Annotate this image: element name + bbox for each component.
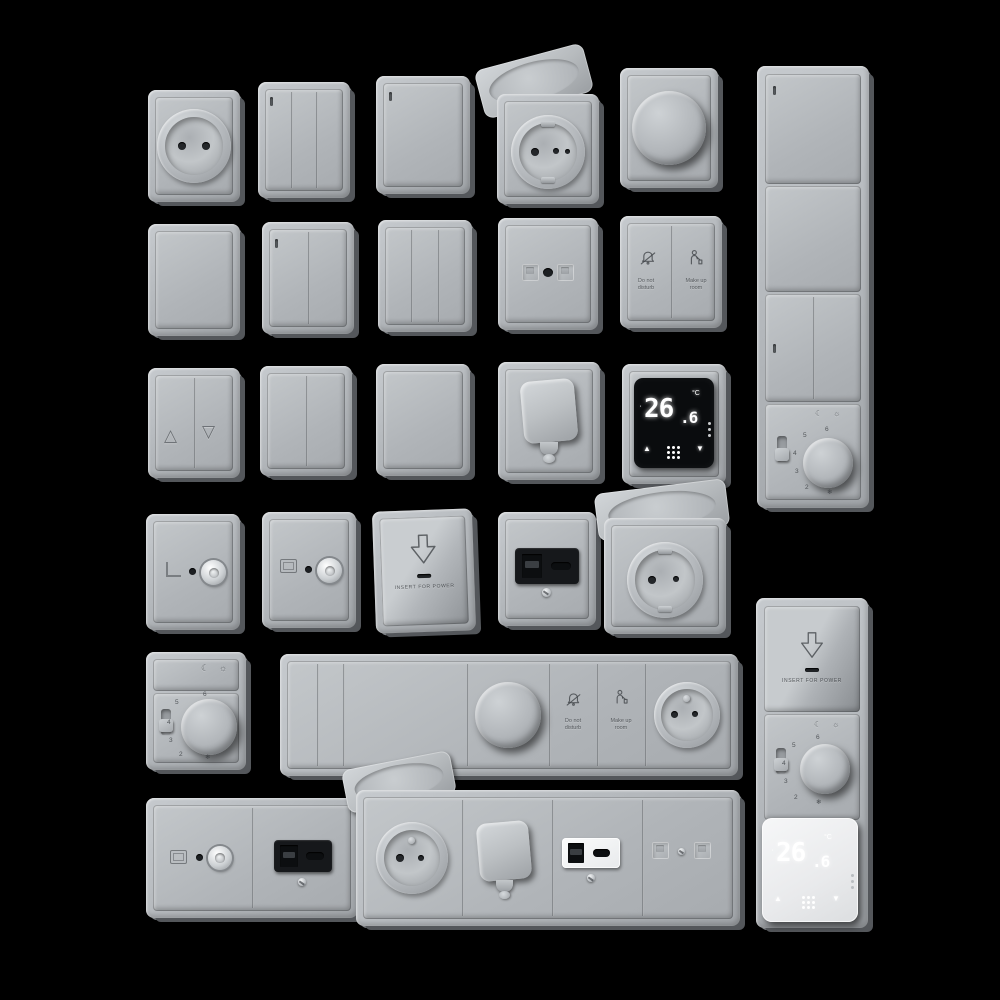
dnd-line2: disturb — [548, 725, 598, 732]
tv-socket-plate — [262, 512, 356, 628]
mur-label: Make up room — [596, 718, 646, 731]
arrow-down-icon — [406, 531, 441, 566]
dial-freeze: ❄ — [205, 753, 210, 761]
temp-int: 26 — [776, 838, 805, 868]
usb-c-port — [306, 852, 324, 860]
blank-face — [155, 231, 233, 329]
switch-rocker — [383, 83, 463, 187]
do-not-disturb-bell-icon — [638, 248, 658, 268]
indicator-led — [773, 344, 776, 353]
ir-hole — [189, 568, 196, 575]
cable-outlet-plate — [498, 362, 600, 480]
usb-white-insert — [562, 838, 620, 868]
switch-1gang-plate — [376, 76, 470, 194]
screw — [678, 848, 685, 855]
dial-freeze: ❄ — [816, 798, 821, 806]
dial-2: 2 — [805, 484, 809, 491]
dial-3: 3 — [169, 737, 173, 744]
coax-connector — [201, 560, 226, 585]
up-button: ▲ — [643, 444, 651, 453]
thermostat-slider — [775, 448, 789, 461]
horizontal-4unit-frame — [356, 790, 740, 926]
dimmer-knob — [475, 682, 541, 748]
card-led-slot — [805, 668, 819, 672]
insert-label: INSERT FOR POWER — [767, 678, 857, 684]
switch-rocker — [383, 371, 463, 469]
earth-clip-top — [658, 548, 672, 554]
down-button: ▼ — [832, 894, 840, 903]
divider — [645, 664, 647, 766]
indicator-led — [275, 239, 278, 248]
hotel-service-switch: Do not disturb Make up room — [620, 216, 722, 328]
key-card-holder: INSERT FOR POWER — [764, 606, 860, 712]
usb-a-port — [522, 554, 542, 578]
divider — [317, 664, 319, 766]
do-not-disturb-bell-icon — [564, 690, 583, 709]
divider — [343, 664, 345, 766]
divider — [597, 664, 599, 766]
shutter-switch-plate: △ ▽ — [148, 368, 240, 478]
divider — [549, 664, 551, 766]
sun-icon: ☼ — [219, 663, 227, 673]
dial-3: 3 — [784, 778, 788, 785]
socket-ring — [627, 542, 703, 618]
earth-clip-bottom — [541, 177, 555, 183]
rocker-divider — [438, 230, 440, 322]
socket-recess — [165, 117, 223, 175]
dial-4: 4 — [793, 450, 797, 457]
make-up-room-person-icon — [686, 248, 706, 268]
french-socket-ring — [654, 682, 720, 748]
usb-insert — [274, 840, 332, 872]
usb-c-port — [593, 849, 610, 857]
socket-hole-left — [396, 854, 404, 862]
sun-icon: ☼ — [832, 720, 839, 729]
tv-usb-double-frame — [146, 798, 358, 918]
indicator-led — [773, 86, 776, 95]
switch-rockers — [265, 89, 343, 191]
blank-plate — [148, 224, 240, 336]
data-port-right-icon — [694, 842, 711, 859]
data-port-right-icon — [557, 264, 574, 281]
rocker-divider — [671, 226, 673, 318]
make-up-room-person-icon — [612, 688, 631, 707]
temp-int: 26 — [644, 394, 673, 424]
switch-rockers — [267, 373, 345, 469]
sun-icon: ☼ — [833, 409, 840, 418]
side-dots — [708, 422, 711, 425]
service-rockers — [627, 223, 715, 321]
usb-a-port — [568, 843, 584, 863]
cable-spout — [519, 378, 578, 444]
dimmer-knob — [632, 91, 706, 165]
socket-hole-left — [531, 148, 539, 156]
dial-4: 4 — [167, 719, 171, 726]
spout-tip — [499, 891, 510, 899]
mur-line2: room — [674, 285, 718, 292]
coax-connector — [317, 558, 342, 583]
indicator-led — [270, 97, 273, 106]
thermostat-knob — [181, 699, 237, 755]
dnd-label: Do not disturb — [624, 278, 668, 291]
earth-clip-bottom — [658, 606, 672, 612]
temp-dec: .6 — [812, 852, 829, 871]
divider — [252, 808, 254, 908]
coax-connector — [208, 846, 232, 870]
dial-4: 4 — [782, 760, 786, 767]
tv-monitor-icon — [170, 850, 187, 864]
unit-label: °C — [824, 834, 832, 841]
thermostat-body: 6 5 4 3 2 ❄ — [153, 693, 239, 763]
dial-6: 6 — [203, 691, 207, 698]
socket-hole-right — [673, 576, 679, 582]
switch-3gang-plate — [378, 220, 472, 332]
menu-grid-icon — [802, 896, 805, 899]
socket-ring — [376, 822, 448, 894]
dial-6: 6 — [816, 734, 820, 741]
divider — [467, 664, 469, 766]
dial-freeze: ❄ — [827, 488, 832, 496]
dial-2: 2 — [794, 794, 798, 801]
socket-hole-right — [202, 142, 210, 150]
switch-rockers — [269, 229, 347, 327]
thermostat-top-strip: ☾ ☼ — [153, 659, 239, 691]
switch-1gang-plate — [376, 364, 470, 476]
unit-label: °C — [692, 390, 700, 397]
dnd-label: Do not disturb — [548, 718, 598, 731]
tv-socket-plate — [146, 514, 240, 630]
temp-dec: .6 — [680, 408, 697, 427]
switch-3gang-plate — [258, 82, 350, 198]
usb-insert — [515, 548, 579, 584]
usb-a-port — [280, 845, 298, 867]
ir-hole — [305, 566, 312, 573]
dnd-line2: disturb — [624, 285, 668, 292]
covered-socket-plate — [497, 94, 599, 204]
tv-corner-icon — [166, 562, 181, 577]
dimmer-plate — [620, 68, 718, 188]
socket-hole-right — [565, 149, 570, 154]
socket-hole-mid — [553, 148, 559, 154]
shutter-down-icon: ▽ — [202, 422, 215, 442]
usb-c-port — [551, 562, 571, 570]
switch-rockers — [385, 227, 465, 325]
heat-indicator: ' — [772, 850, 773, 856]
screw — [587, 874, 595, 882]
cable-spout — [476, 820, 533, 882]
earth-clip-top — [541, 121, 555, 127]
socket-hole-right — [418, 855, 424, 861]
render-canvas: ☾ ☼ 6 5 4 3 2 ❄ — [0, 0, 1000, 1000]
screw — [298, 878, 306, 886]
frame-blank-plate — [765, 186, 861, 292]
thermostat-black-plate: °C ' 26 .6 ▲ ▼ — [622, 364, 726, 484]
divider — [462, 800, 464, 916]
data-port-left-icon — [652, 842, 669, 859]
moon-icon: ☾ — [814, 720, 821, 729]
rocker-divider — [411, 230, 413, 322]
earth-pin — [683, 695, 690, 702]
vertical-3unit-frame: INSERT FOR POWER ☾ ☼ 6 5 4 3 2 ❄ °C ' 26… — [756, 598, 868, 928]
socket-hole-left — [648, 576, 656, 584]
analog-thermostat: ☾ ☼ 6 5 4 3 2 ❄ — [764, 714, 860, 820]
vertical-4unit-frame: ☾ ☼ 6 5 4 3 2 ❄ — [757, 66, 869, 508]
socket-hole-left — [671, 711, 678, 718]
tv-monitor-icon — [280, 559, 297, 573]
menu-grid-icon — [667, 446, 670, 449]
indicator-led — [389, 92, 392, 101]
moon-icon: ☾ — [815, 409, 822, 418]
thermostat-screen: °C ' 26 .6 ▲ ▼ — [634, 378, 714, 468]
usb-charger-plate — [498, 512, 596, 626]
socket-ring — [157, 109, 231, 183]
covered-schuko-plate — [604, 518, 726, 634]
mur-label: Make up room — [674, 278, 718, 291]
screw — [542, 588, 551, 597]
earth-pin — [408, 837, 415, 844]
rocker-divider — [306, 376, 308, 466]
arrow-down-icon — [797, 630, 827, 660]
dial-2: 2 — [179, 751, 183, 758]
rocker-divider — [316, 92, 318, 188]
socket-hole-right — [692, 711, 698, 717]
ir-hole — [196, 854, 203, 861]
thermostat-white: °C ' 26 .6 ▲ ▼ — [762, 818, 858, 922]
dial-5: 5 — [792, 742, 796, 749]
data-port-left-icon — [522, 264, 539, 281]
data-socket-plate — [498, 218, 598, 330]
socket-ring — [511, 115, 585, 189]
shutter-up-icon: △ — [164, 426, 177, 446]
frame-switch-2gang — [765, 294, 861, 402]
rocker-divider — [291, 92, 293, 188]
card-led-slot — [417, 574, 431, 578]
rocker-divider — [308, 232, 310, 324]
spout-tip — [543, 454, 555, 463]
frame-analog-thermostat: ☾ ☼ 6 5 4 3 2 ❄ — [765, 404, 861, 500]
switch-2gang-plate — [260, 366, 352, 476]
heat-indicator: ' — [640, 406, 641, 412]
horizontal-6unit-frame: Do not disturb Make up room — [280, 654, 738, 776]
shutter-rockers — [155, 375, 233, 471]
down-button: ▼ — [696, 444, 704, 453]
divider — [642, 800, 644, 916]
thermostat-knob — [803, 438, 853, 488]
analog-thermostat-plate: ☾ ☼ 6 5 4 3 2 ❄ — [146, 652, 246, 770]
thermostat-knob — [800, 744, 850, 794]
up-button: ▲ — [774, 894, 782, 903]
dial-5: 5 — [175, 699, 179, 706]
moon-icon: ☾ — [201, 663, 209, 674]
center-hole — [543, 268, 553, 277]
socket-recess — [635, 550, 694, 609]
mur-line2: room — [596, 725, 646, 732]
switch-2gang-plate — [262, 222, 354, 334]
rocker-divider — [813, 297, 815, 399]
side-dots — [851, 874, 854, 877]
divider — [552, 800, 554, 916]
dial-5: 5 — [803, 432, 807, 439]
rocker-divider — [194, 378, 196, 468]
dial-3: 3 — [795, 468, 799, 475]
french-socket-plate — [148, 90, 240, 202]
frame-switch-1gang — [765, 74, 861, 184]
key-card-holder: INSERT FOR POWER — [372, 508, 476, 633]
socket-hole-left — [178, 142, 186, 150]
dial-6: 6 — [825, 426, 829, 433]
